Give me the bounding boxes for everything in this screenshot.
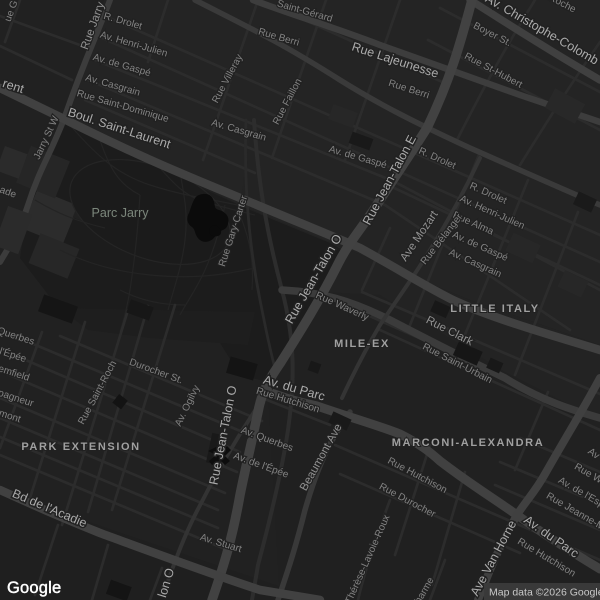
svg-text:Google: Google	[7, 579, 61, 597]
svg-text:MARCONI-ALEXANDRA: MARCONI-ALEXANDRA	[392, 437, 544, 449]
svg-text:Map data ©2026 Google: Map data ©2026 Google	[489, 587, 600, 599]
svg-text:PARK EXTENSION: PARK EXTENSION	[21, 441, 140, 453]
svg-text:Parc Jarry: Parc Jarry	[92, 206, 150, 220]
svg-text:LITTLE ITALY: LITTLE ITALY	[450, 303, 539, 315]
svg-text:MILE-EX: MILE-EX	[334, 338, 390, 350]
